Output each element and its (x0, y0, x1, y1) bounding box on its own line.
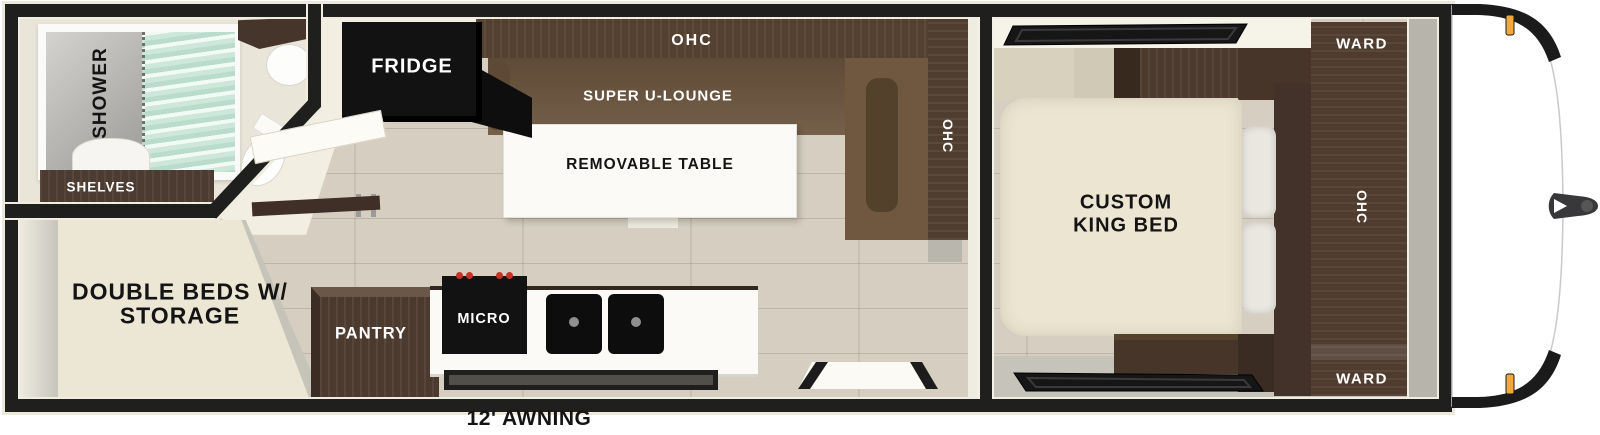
bathroom-right-wall (308, 4, 321, 110)
bathroom-bottom-wall (5, 204, 219, 218)
king-bed-label-line1: CUSTOM (1080, 192, 1172, 215)
double-beds-label-line1: DOUBLE BEDS W/ (72, 279, 288, 306)
bedroom-divider-wall (978, 17, 994, 399)
pantry-label: PANTRY (335, 325, 407, 344)
front-cap-trim-bottom (1452, 350, 1561, 408)
hitch-pin (1581, 200, 1593, 212)
hitch-notch (1554, 199, 1567, 213)
shelves-label: SHELVES (66, 180, 135, 195)
ohc-top-label: OHC (671, 32, 713, 50)
shower-label: SHOWER (90, 47, 112, 139)
ward-bottom-label: WARD (1336, 371, 1388, 388)
lounge-label: SUPER U-LOUNGE (583, 88, 733, 105)
fridge-label: FRIDGE (371, 56, 453, 79)
hitch-coupler (1549, 193, 1598, 219)
double-beds-label-line2: STORAGE (120, 303, 240, 330)
front-cap-body (1452, 6, 1563, 406)
micro-label: MICRO (457, 311, 510, 327)
king-bed-label-line2: KING BED (1073, 215, 1179, 238)
marker-light-top (1506, 15, 1514, 35)
awning-label: 12' AWNING (467, 407, 592, 431)
table-label: REMOVABLE TABLE (566, 156, 734, 174)
ward-top-label: WARD (1336, 36, 1388, 53)
front-cap-trim-top (1452, 4, 1561, 62)
ohc-bedroom-label: OHC (1354, 190, 1370, 224)
trailer-outer-wall (5, 4, 1452, 412)
floorplan-canvas: SHOWER SHELVES FRIDGE OHC SUPER U-LOUNGE… (0, 0, 1600, 435)
ohc-side-label: OHC (940, 119, 956, 153)
marker-light-bottom (1506, 374, 1514, 394)
